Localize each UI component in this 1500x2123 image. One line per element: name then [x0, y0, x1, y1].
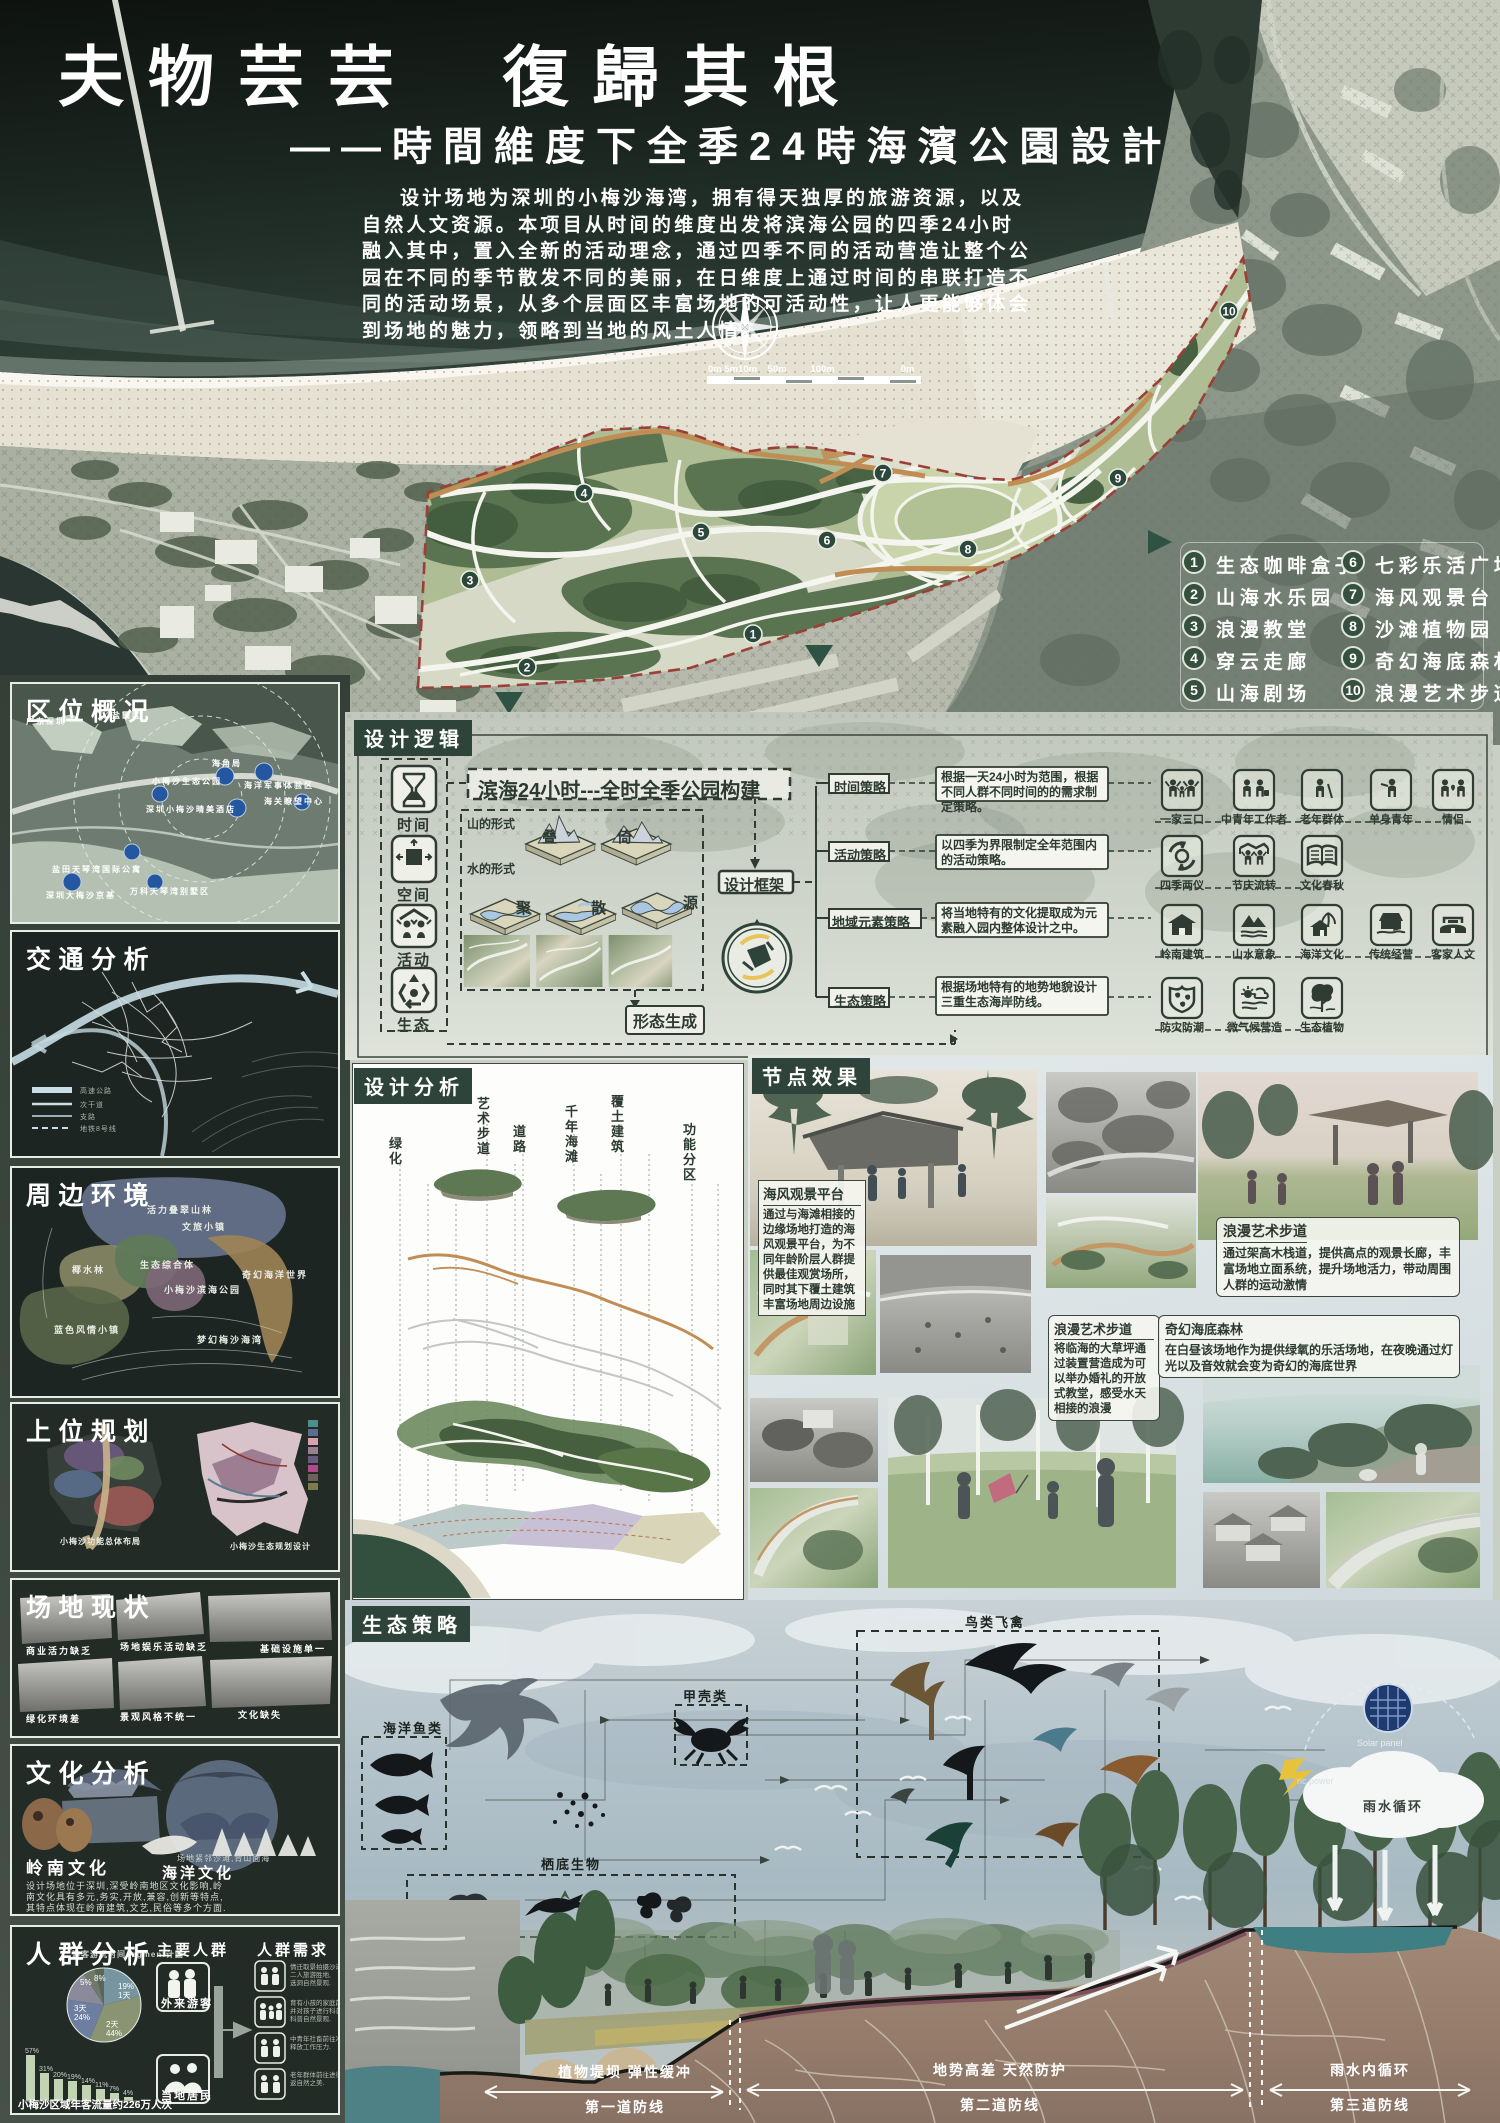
svg-text:小梅沙功能总体布局: 小梅沙功能总体布局 [59, 1536, 141, 1546]
svg-text:24%: 24% [74, 2013, 90, 2022]
svg-text:选洞自然景观.: 选洞自然景观. [290, 1978, 331, 1987]
svg-text:生态综合体: 生态综合体 [140, 1259, 195, 1270]
svg-text:文旅小镇: 文旅小镇 [181, 1221, 226, 1232]
svg-text:绿化环境差: 绿化环境差 [26, 1713, 81, 1724]
svg-text:次干道: 次干道 [80, 1100, 104, 1109]
svg-text:万科天琴湾别墅区: 万科天琴湾别墅区 [129, 886, 210, 896]
svg-text:小梅沙滨海公园: 小梅沙滨海公园 [163, 1284, 241, 1295]
svg-text:20%: 20% [53, 2072, 67, 2079]
svg-text:19%: 19% [67, 2074, 81, 2081]
svg-text:支路: 支路 [80, 1112, 96, 1121]
svg-text:小梅沙生态规划设计: 小梅沙生态规划设计 [229, 1541, 311, 1551]
svg-text:场地紧邻沙滩,背山面海: 场地紧邻沙滩,背山面海 [177, 1853, 270, 1863]
svg-text:深圳大梅沙京基: 深圳大梅沙京基 [46, 890, 116, 900]
svg-text:其特点体现在岭南建筑,文艺,民俗等多个方面.: 其特点体现在岭南建筑,文艺,民俗等多个方面. [26, 1902, 227, 1913]
svg-text:19%: 19% [118, 1982, 134, 1991]
svg-text:6: 6 [824, 534, 831, 548]
svg-text:活力叠翠山林: 活力叠翠山林 [147, 1204, 213, 1215]
svg-text:文化缺失: 文化缺失 [237, 1709, 282, 1720]
svg-text:14%: 14% [81, 2078, 95, 2085]
svg-text:商业活力缺乏: 商业活力缺乏 [26, 1645, 92, 1656]
svg-text:海角局: 海角局 [212, 758, 242, 768]
svg-text:8%: 8% [94, 1974, 106, 1983]
svg-text:2天: 2天 [106, 2020, 118, 2029]
svg-text:地铁8号线: 地铁8号线 [80, 1124, 117, 1133]
svg-text:返自然之美.: 返自然之美. [290, 2078, 325, 2087]
svg-text:奇幻海洋世界: 奇幻海洋世界 [242, 1269, 308, 1280]
svg-text:31%: 31% [39, 2066, 53, 2073]
svg-text:情迁取景拍摄沙滩,: 情迁取景拍摄沙滩, [290, 1962, 338, 1971]
svg-text:南文化具有多元,务实,开放,兼容,创新等特点,: 南文化具有多元,务实,开放,兼容,创新等特点, [26, 1891, 224, 1902]
svg-text:蓝色风情小镇: 蓝色风情小镇 [54, 1324, 120, 1335]
svg-text:椰水林: 椰水林 [72, 1264, 105, 1275]
svg-text:小梅沙生态公园: 小梅沙生态公园 [151, 776, 222, 786]
svg-text:设计场地位于深圳,深受岭南地区文化影响,岭: 设计场地位于深圳,深受岭南地区文化影响,岭 [26, 1880, 223, 1891]
svg-text:11%: 11% [95, 2082, 109, 2089]
svg-text:7: 7 [880, 467, 887, 481]
svg-text:57%: 57% [25, 2048, 39, 2055]
svg-text:1天: 1天 [118, 1991, 130, 2000]
svg-text:二人旅游胜地,: 二人旅游胜地, [290, 1970, 331, 1979]
svg-text:海关瞭望中心: 海关瞭望中心 [264, 796, 324, 806]
svg-text:小梅沙区域年客流量约226万人次: 小梅沙区域年客流量约226万人次 [17, 2098, 173, 2111]
svg-text:释放工作压力.: 释放工作压力. [290, 2042, 331, 2051]
svg-text:4: 4 [581, 487, 588, 501]
svg-text:3: 3 [467, 574, 474, 588]
svg-text:科普自然景观.: 科普自然景观. [290, 2014, 331, 2023]
svg-text:4%: 4% [123, 2090, 133, 2097]
svg-text:场地娱乐活动缺乏: 场地娱乐活动缺乏 [120, 1641, 208, 1652]
svg-text:海洋文化: 海洋文化 [162, 1864, 234, 1882]
svg-text:44%: 44% [106, 2029, 122, 2038]
svg-text:8: 8 [965, 543, 972, 557]
svg-text:人群需求: 人群需求 [257, 1941, 329, 1959]
svg-text:3天: 3天 [74, 2004, 86, 2013]
svg-text:老年群体前往进行山海康养: 老年群体前往进行山海康养 [290, 2070, 338, 2079]
svg-text:2: 2 [524, 661, 531, 675]
svg-text:育有小孩的家庭前来度假,: 育有小孩的家庭前来度假, [290, 1998, 338, 2007]
svg-text:10: 10 [1222, 305, 1236, 319]
svg-text:主要人群: 主要人群 [157, 1941, 229, 1959]
svg-text:梦幻梅沙海湾: 梦幻梅沙海湾 [197, 1334, 263, 1345]
svg-text:5%: 5% [80, 1978, 92, 1987]
svg-text:7%: 7% [109, 2086, 119, 2093]
svg-text:中青年社畜前往冲浪,: 中青年社畜前往冲浪, [290, 2034, 338, 2043]
svg-text:1: 1 [750, 628, 757, 642]
svg-text:景观风格不统一: 景观风格不统一 [120, 1711, 197, 1722]
svg-text:高速公路: 高速公路 [80, 1086, 112, 1095]
svg-text:岭南文化: 岭南文化 [26, 1858, 110, 1878]
svg-text:5: 5 [698, 526, 705, 540]
svg-text:并对孩子进行科普教育活动: 并对孩子进行科普教育活动 [290, 2006, 338, 2015]
svg-text:基础设施单一: 基础设施单一 [259, 1643, 326, 1654]
svg-text:海洋军事体验区: 海洋军事体验区 [244, 780, 314, 790]
svg-text:9: 9 [1115, 472, 1122, 486]
svg-text:盐田天琴湾国际公寓: 盐田天琴湾国际公寓 [52, 864, 142, 874]
svg-text:深圳小梅沙晴美酒店: 深圳小梅沙晴美酒店 [146, 804, 236, 814]
svg-text:外来游客: 外来游客 [160, 1996, 213, 2010]
